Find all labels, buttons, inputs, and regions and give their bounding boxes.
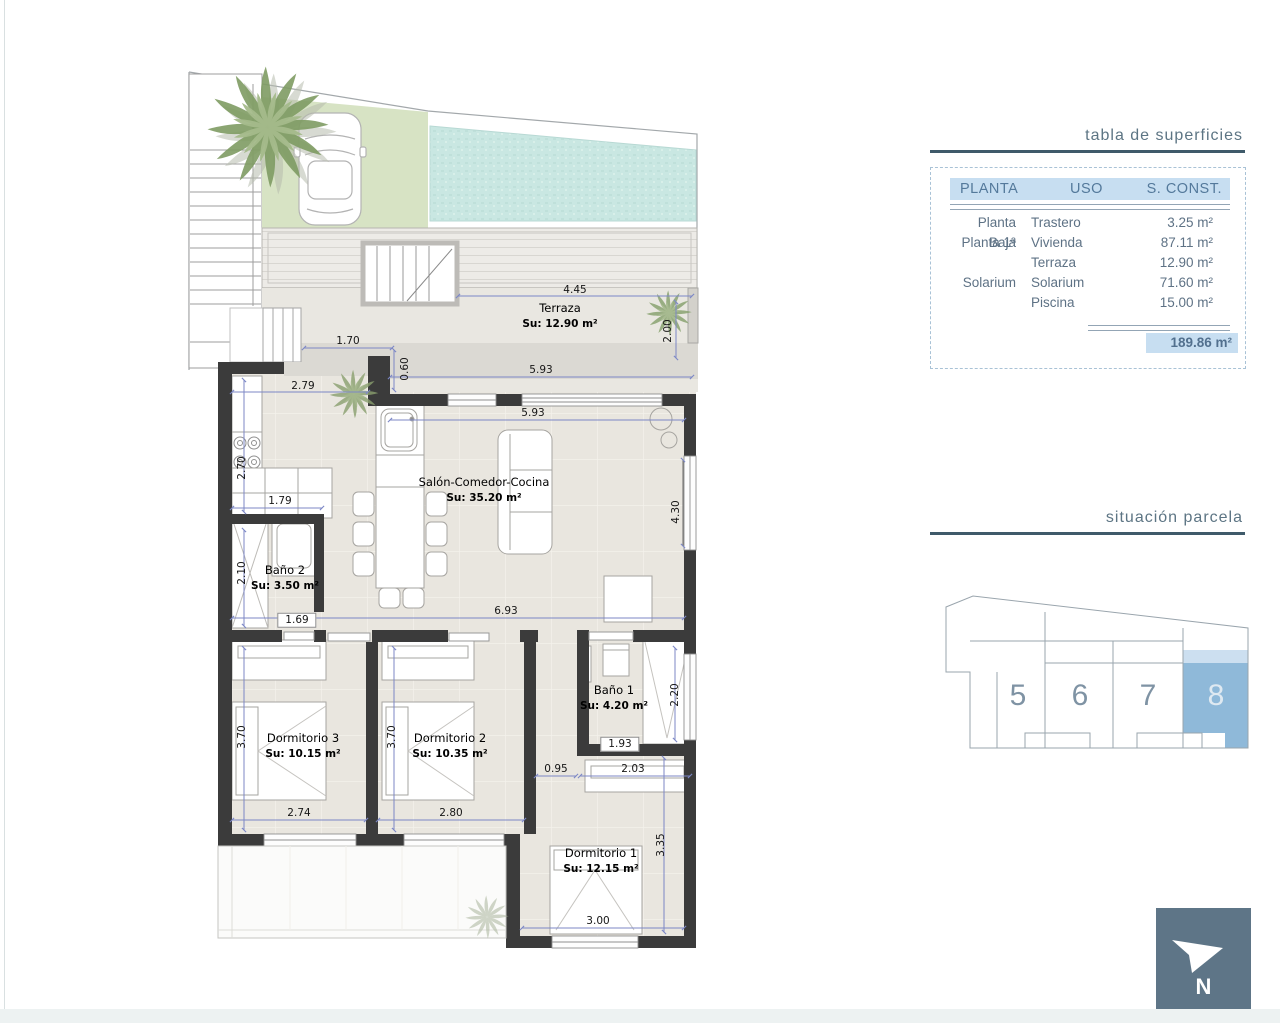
table-row: Piscina15.00 m² [950,293,1230,313]
plot-number-8-highlighted: 8 [1208,679,1225,713]
room-label-dormitorio3: Dormitorio 3Su: 10.15 m² [265,731,340,761]
room-label-bano1: Baño 1Su: 4.20 m² [580,683,648,713]
table-title: tabla de superficies [930,127,1243,145]
room-label-dormitorio1: Dormitorio 1Su: 12.15 m² [563,846,638,876]
room-label-terraza: TerrazaSu: 12.90 m² [522,301,597,331]
header-planta: PLANTA [950,181,1070,197]
parcela-title-rule [930,532,1245,535]
pool [430,126,696,221]
dim-2.00: 2.00 [663,319,674,342]
dim-2.70: 2.70 [237,456,248,479]
table-row: Planta 1ªVivienda87.11 m² [950,233,1230,253]
page-left-edge [4,0,5,1023]
dim-0.95: 0.95 [544,764,567,775]
pool-deck [262,228,697,288]
parcela-diagram [946,596,1248,748]
north-label: N [1156,974,1251,1000]
dim-0.60: 0.60 [400,357,411,380]
dim-3.70-a: 3.70 [237,725,248,748]
table-row: Terraza12.90 m² [950,253,1230,273]
header-uso: USO [1070,181,1145,197]
dim-2.74: 2.74 [287,808,310,819]
table-row: SolariumSolarium71.60 m² [950,273,1230,293]
dim-2.10: 2.10 [237,561,248,584]
table-title-rule [930,150,1245,153]
dim-5.93-a: 5.93 [529,365,552,376]
dim-6.93: 6.93 [494,606,517,617]
patio [218,846,506,938]
dim-4.30: 4.30 [671,500,682,523]
total-surface: 189.86 m² [1146,333,1238,353]
plot-number-7: 7 [1140,679,1157,713]
dim-3.00: 3.00 [586,916,609,927]
dim-1.69: 1.69 [277,613,316,628]
table-row: Planta BajaTrastero3.25 m² [950,213,1230,233]
dim-2.03: 2.03 [621,764,644,775]
north-arrow-box: N [1156,908,1251,1010]
dim-2.80: 2.80 [439,808,462,819]
stairwell [363,243,457,304]
surface-table-header: PLANTA USO S. CONST. [950,178,1230,200]
total-divider [1088,325,1230,331]
room-label-dormitorio2: Dormitorio 2Su: 10.35 m² [412,731,487,761]
dim-3.35: 3.35 [656,833,667,856]
plot-number-5: 5 [1010,679,1027,713]
room-label-salon: Salón-Comedor-CocinaSu: 35.20 m² [419,475,550,505]
dim-2.79: 2.79 [291,381,314,392]
dim-1.79: 1.79 [268,496,291,507]
entry-steps [230,308,301,362]
plot-number-6: 6 [1072,679,1089,713]
room-label-bano2: Baño 2Su: 3.50 m² [251,563,319,593]
dim-1.70: 1.70 [336,336,359,347]
dim-4.45: 4.45 [563,285,586,296]
dim-1.93: 1.93 [600,737,639,752]
dim-2.20: 2.20 [670,683,681,706]
dim-3.70-b: 3.70 [387,725,398,748]
header-sconst: S. CONST. [1145,181,1230,197]
header-divider [950,204,1230,210]
parcela-title: situación parcela [930,509,1243,527]
page-bottom-edge [0,1009,1280,1023]
dim-5.93-b: 5.93 [521,408,544,419]
